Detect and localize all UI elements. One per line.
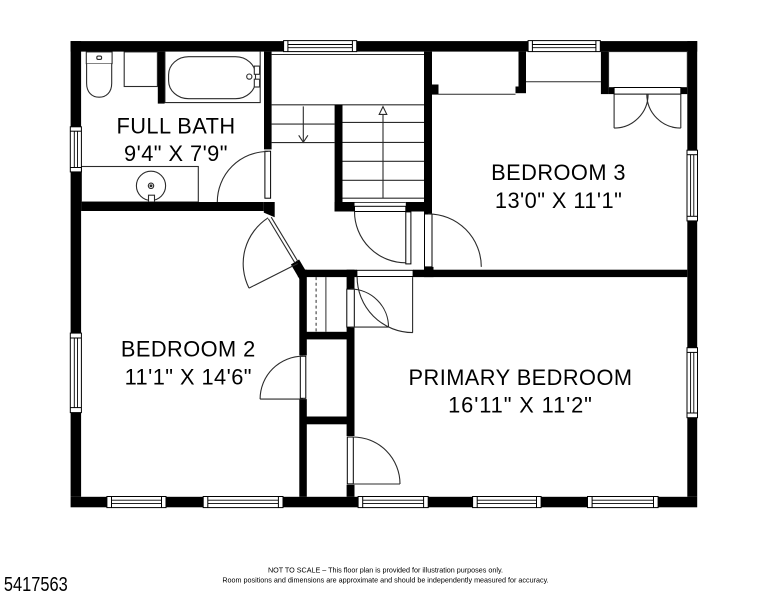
svg-text:BEDROOM 2: BEDROOM 2 <box>121 337 256 362</box>
svg-text:9'4" X 7'9": 9'4" X 7'9" <box>124 141 228 166</box>
svg-text:BEDROOM 3: BEDROOM 3 <box>491 160 626 185</box>
svg-text:5417563: 5417563 <box>4 572 68 594</box>
svg-text:16'11" X 11'2": 16'11" X 11'2" <box>448 393 593 418</box>
svg-text:FULL BATH: FULL BATH <box>116 114 235 139</box>
svg-text:PRIMARY BEDROOM: PRIMARY BEDROOM <box>409 365 633 390</box>
svg-text:13'0" X 11'1": 13'0" X 11'1" <box>495 188 622 213</box>
svg-text:NOT TO SCALE – This floor plan: NOT TO SCALE – This floor plan is provid… <box>268 565 503 574</box>
svg-text:Room positions and dimensions: Room positions and dimensions are approx… <box>222 576 548 585</box>
svg-text:11'1" X 14'6": 11'1" X 14'6" <box>125 365 252 390</box>
